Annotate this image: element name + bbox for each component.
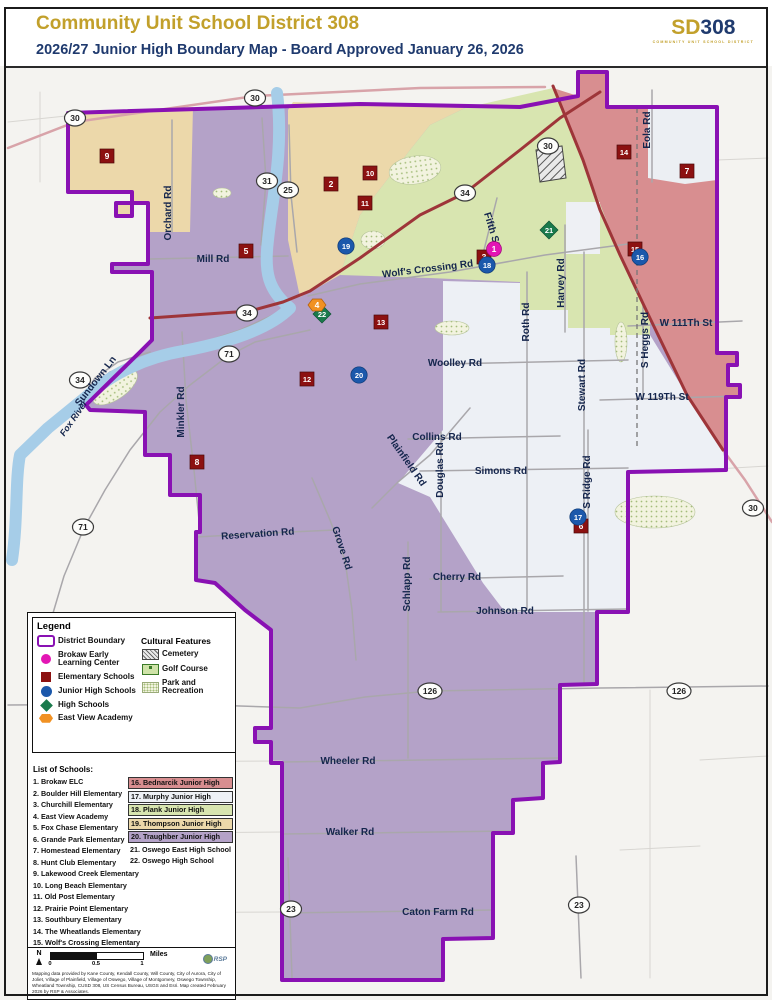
- logo-prefix: SD: [671, 16, 700, 39]
- legend-item-junior_high: Junior High Schools: [37, 686, 141, 697]
- school-list-item: 22. Oswego High School: [128, 856, 233, 866]
- route-shield-number: 34: [75, 375, 85, 385]
- route-shield-71: 71: [219, 346, 240, 362]
- school-marker-12: 12: [300, 372, 314, 386]
- road-label: Harvey Rd: [556, 258, 567, 307]
- school-list-item: 12. Prairie Point Elementary: [33, 903, 232, 915]
- legend-item-label: Park and Recreation: [162, 679, 231, 696]
- school-marker-number: 2: [329, 179, 334, 189]
- golf-course-area: [213, 188, 231, 198]
- school-marker-number: 13: [377, 318, 385, 327]
- map-page: Community Unit School District 308 2026/…: [0, 0, 772, 1000]
- legend-item-boundary: District Boundary: [37, 635, 141, 647]
- east-view-icon: [37, 714, 55, 723]
- boundary-icon: [37, 635, 55, 647]
- school-marker-number: 1: [492, 244, 497, 254]
- route-shield-number: 25: [283, 185, 293, 195]
- legend-item-park: Park and Recreation: [141, 679, 231, 696]
- school-marker-11: 11: [358, 196, 372, 210]
- route-shield-number: 34: [242, 308, 252, 318]
- legend-item-label: Cemetery: [162, 650, 198, 658]
- route-shield-number: 30: [543, 141, 553, 151]
- school-marker-number: 7: [685, 166, 690, 176]
- route-shield-23: 23: [281, 901, 302, 917]
- road-label: S Heggs Rd: [640, 312, 651, 368]
- school-list-item: 19. Thompson Junior High: [128, 818, 233, 830]
- cemetery-icon: [141, 649, 159, 660]
- school-marker-10: 10: [363, 166, 377, 180]
- school-list-item: 21. Oswego East High School: [128, 845, 233, 855]
- park-icon: [141, 682, 159, 693]
- route-shield-number: 30: [70, 113, 80, 123]
- route-shield-number: 31: [262, 176, 272, 186]
- school-marker-1: 1: [487, 242, 502, 257]
- school-marker-number: 17: [574, 513, 582, 522]
- school-marker-18: 18: [479, 257, 495, 273]
- page-title: Community Unit School District 308: [36, 13, 359, 35]
- school-marker-16: 16: [632, 249, 648, 265]
- road-label: Eola Rd: [642, 111, 653, 148]
- school-list: List of Schools: 1. Brokaw ELC2. Boulder…: [33, 765, 232, 949]
- legend-item-east_view: East View Academy: [37, 714, 141, 723]
- school-list-item: 14. The Wheatlands Elementary: [33, 926, 232, 938]
- legend-item-label: East View Academy: [58, 714, 133, 722]
- road-label: Schlapp Rd: [402, 556, 413, 611]
- patch-subdivision: [566, 202, 600, 254]
- rsp-logo: RSP: [203, 954, 227, 964]
- school-list-item: 20. Traughber Junior High: [128, 831, 233, 843]
- road-label: W 111Th St: [660, 318, 713, 329]
- road-label: Caton Farm Rd: [402, 907, 474, 918]
- road-label: Woolley Rd: [428, 358, 482, 369]
- road-label: Collins Rd: [412, 432, 461, 443]
- school-marker-number: 8: [195, 457, 200, 467]
- school-marker-number: 16: [636, 253, 644, 262]
- route-shield-number: 71: [224, 349, 234, 359]
- school-list-item: 18. Plank Junior High: [128, 804, 233, 816]
- route-shield-34: 34: [455, 185, 476, 201]
- route-shield-number: 30: [250, 93, 260, 103]
- school-marker-number: 9: [105, 151, 110, 161]
- school-marker-number: 20: [355, 371, 363, 380]
- road-label: Stewart Rd: [577, 359, 588, 411]
- route-shield-71: 71: [73, 519, 94, 535]
- page-subtitle: 2026/27 Junior High Boundary Map - Board…: [36, 42, 524, 58]
- school-marker-number: 5: [244, 246, 249, 256]
- school-marker-7: 7: [680, 164, 694, 178]
- school-marker-17: 17: [570, 509, 586, 525]
- legend-item-label: High Schools: [58, 701, 109, 709]
- legend-item-golf: Golf Course: [141, 664, 231, 675]
- school-marker-number: 12: [303, 375, 311, 384]
- legend-item-label: District Boundary: [58, 637, 125, 645]
- rsp-tree-icon: [203, 954, 213, 964]
- high-school-icon: [37, 701, 55, 710]
- school-list-item: 13. Southbury Elementary: [33, 914, 232, 926]
- school-list-item: 17. Murphy Junior High: [128, 791, 233, 803]
- school-list-item: 11. Old Post Elementary: [33, 891, 232, 903]
- scale-attribution-bar: N Miles 00.51 RSP Mapping data provided …: [28, 947, 235, 999]
- map-header: Community Unit School District 308 2026/…: [6, 9, 766, 68]
- legend-item-label: Elementary Schools: [58, 673, 134, 681]
- route-shield-31: 31: [257, 173, 278, 189]
- route-shield-126: 126: [667, 683, 691, 699]
- legend-title: Legend: [37, 621, 231, 632]
- school-marker-20: 20: [351, 367, 367, 383]
- road-label: Johnson Rd: [476, 606, 534, 617]
- school-marker-5: 5: [239, 244, 253, 258]
- route-shield-number: 71: [78, 522, 88, 532]
- school-list-item: 16. Bednarcik Junior High: [128, 777, 233, 789]
- route-shield-number: 23: [574, 900, 584, 910]
- school-marker-number: 14: [620, 148, 629, 157]
- road-label: Minkler Rd: [176, 386, 187, 437]
- school-list-item: 10. Long Beach Elementary: [33, 880, 232, 892]
- route-shield-number: 126: [423, 686, 437, 696]
- road-label: Orchard Rd: [163, 185, 174, 240]
- school-marker-9: 9: [100, 149, 114, 163]
- north-label: N: [34, 951, 44, 957]
- route-shield-126: 126: [418, 683, 442, 699]
- logo-number: 308: [700, 16, 735, 39]
- road-label: Mill Rd: [197, 254, 230, 265]
- north-arrow-icon: [36, 958, 42, 965]
- logo-tagline: COMMUNITY UNIT SCHOOL DISTRICT: [653, 41, 754, 45]
- route-shield-25: 25: [278, 182, 299, 198]
- attribution-text: Mapping data provided by Kane County, Ke…: [32, 971, 231, 995]
- legend-item-elementary: Elementary Schools: [37, 672, 141, 682]
- route-shield-34: 34: [237, 305, 258, 321]
- road-label: Douglas Rd: [435, 442, 446, 498]
- legend-item-label: Golf Course: [162, 665, 208, 673]
- school-marker-2: 2: [324, 177, 338, 191]
- route-shield-number: 23: [286, 904, 296, 914]
- school-marker-14: 14: [617, 145, 631, 159]
- school-list-item: 9. Lakewood Creek Elementary: [33, 868, 232, 880]
- route-shield-30: 30: [245, 90, 266, 106]
- scale-unit: Miles: [150, 951, 168, 958]
- rsp-logo-text: RSP: [214, 956, 227, 963]
- park-area: [615, 322, 627, 362]
- route-shield-30: 30: [65, 110, 86, 126]
- legend-item-label: Brokaw Early Learning Center: [58, 651, 141, 668]
- elementary-icon: [37, 672, 55, 682]
- road-label: Cherry Rd: [433, 572, 481, 583]
- legend: Legend District BoundaryBrokaw Early Lea…: [32, 617, 236, 753]
- school-marker-13: 13: [374, 315, 388, 329]
- road-label: Roth Rd: [521, 303, 532, 342]
- road-label: Simons Rd: [475, 466, 527, 477]
- school-marker-number: 21: [545, 226, 553, 235]
- school-marker-8: 8: [190, 455, 204, 469]
- school-marker-number: 11: [361, 199, 369, 208]
- info-panel: Legend District BoundaryBrokaw Early Lea…: [27, 612, 236, 1000]
- legend-item-brokaw: Brokaw Early Learning Center: [37, 651, 141, 668]
- cultural-features-title: Cultural Features: [141, 636, 231, 646]
- north-arrow: N: [34, 951, 44, 965]
- scale-tick: 1: [140, 961, 143, 967]
- school-list-title: List of Schools:: [33, 765, 232, 774]
- junior-high-icon: [37, 686, 55, 697]
- route-shield-30: 30: [743, 500, 764, 516]
- school-marker-number: 18: [483, 261, 491, 270]
- route-shield-30: 30: [538, 138, 559, 154]
- legend-item-cemetery: Cemetery: [141, 649, 231, 660]
- road-label: Wheeler Rd: [320, 756, 375, 767]
- road-label: S Ridge Rd: [582, 455, 593, 508]
- route-shield-number: 34: [460, 188, 470, 198]
- school-marker-number: 19: [342, 242, 350, 251]
- school-marker-number: 10: [366, 169, 374, 178]
- golf-course-area: [361, 231, 385, 249]
- route-shield-23: 23: [569, 897, 590, 913]
- park-area: [435, 321, 469, 335]
- scale-tick: 0.5: [92, 961, 100, 967]
- golf-icon: [141, 664, 159, 675]
- school-marker-19: 19: [338, 238, 354, 254]
- school-marker-number: 4: [315, 300, 320, 310]
- road-label: Walker Rd: [326, 827, 375, 838]
- scale-bar: [50, 952, 144, 960]
- route-shield-number: 126: [672, 686, 686, 696]
- road-label: W 119Th St: [635, 392, 689, 403]
- district-logo: SD308 COMMUNITY UNIT SCHOOL DISTRICT: [653, 17, 754, 45]
- brokaw-icon: [37, 654, 55, 664]
- legend-item-high_school: High Schools: [37, 701, 141, 710]
- scale-tick: 0: [48, 961, 51, 967]
- route-shield-number: 30: [748, 503, 758, 513]
- legend-item-label: Junior High Schools: [58, 687, 136, 695]
